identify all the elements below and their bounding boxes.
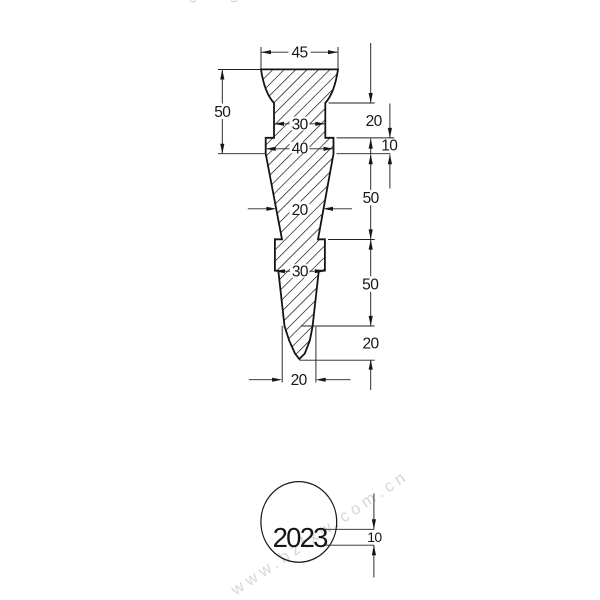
svg-text:45: 45 [291,45,307,62]
svg-text:2023: 2023 [273,522,328,553]
svg-text:50: 50 [363,190,380,207]
svg-text:10: 10 [381,138,398,155]
svg-text:30: 30 [292,264,309,281]
svg-text:20: 20 [366,113,383,130]
svg-text:20: 20 [362,335,379,352]
svg-text:20: 20 [291,372,308,389]
svg-text:10: 10 [367,529,382,545]
svg-text:50: 50 [214,104,231,121]
svg-text:50: 50 [362,277,379,294]
svg-text:20: 20 [292,202,309,219]
svg-text:30: 30 [292,116,309,133]
svg-text:40: 40 [292,141,309,158]
